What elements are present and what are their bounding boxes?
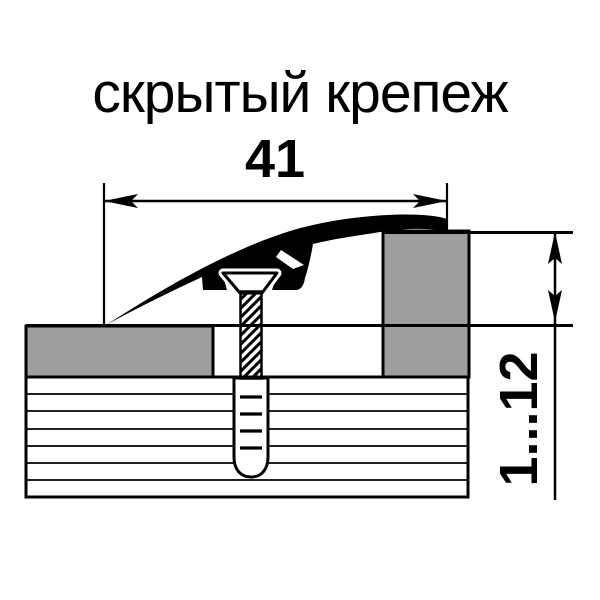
screw-tip-outline xyxy=(234,378,268,477)
screw-threaded-tip xyxy=(234,378,268,477)
left-floor-covering xyxy=(26,326,213,377)
profile-cross-section-diagram: 41 1...12 xyxy=(0,0,600,600)
width-dimension-value: 41 xyxy=(245,129,305,189)
screw-head xyxy=(223,273,277,293)
height-dimension: 1...12 xyxy=(489,231,562,500)
height-dimension-value: 1...12 xyxy=(489,351,549,486)
right-floor-covering xyxy=(383,231,469,377)
technical-drawing-page: скрытый крепеж xyxy=(0,0,600,600)
screw-shaft-hatched xyxy=(241,292,262,379)
